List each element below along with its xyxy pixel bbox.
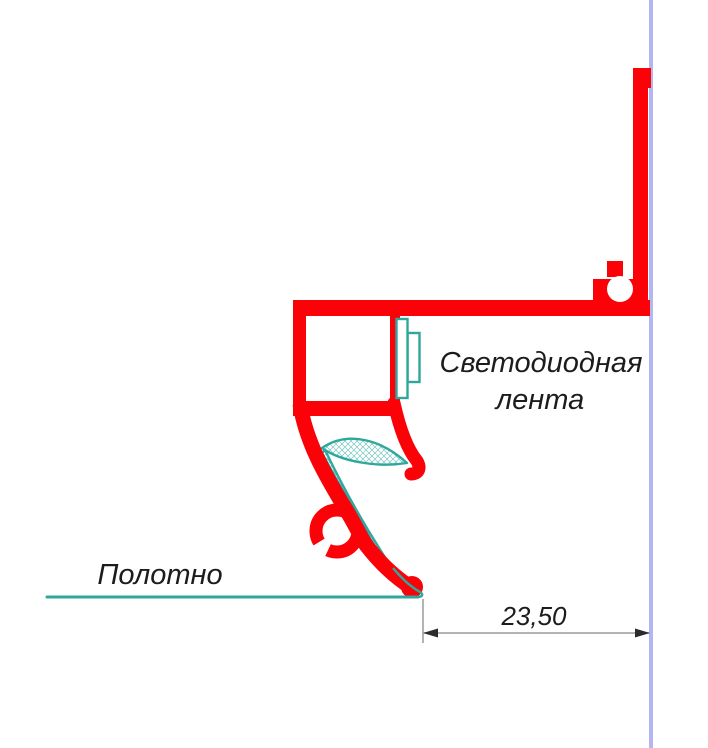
dimension: 23,50: [423, 599, 650, 643]
profile-diagram-page: 23,50 Светодиодная лента Полотно: [0, 0, 708, 748]
led-strip-label-line1: Светодиодная: [439, 347, 642, 379]
dimension-value: 23,50: [500, 601, 567, 631]
dimension-arrow-left: [423, 629, 438, 638]
led-strip-section: [397, 319, 420, 398]
screw-port-detail: [593, 261, 635, 302]
dimension-arrow-right: [635, 629, 650, 638]
profile-cross-section-drawing: 23,50 Светодиодная лента Полотно: [0, 0, 708, 748]
led-strip-label-line2: лента: [494, 384, 584, 416]
profile-wall-bar: [633, 68, 651, 302]
canvas-label: Полотно: [97, 559, 222, 591]
seal-leaf-upper: [322, 439, 407, 465]
